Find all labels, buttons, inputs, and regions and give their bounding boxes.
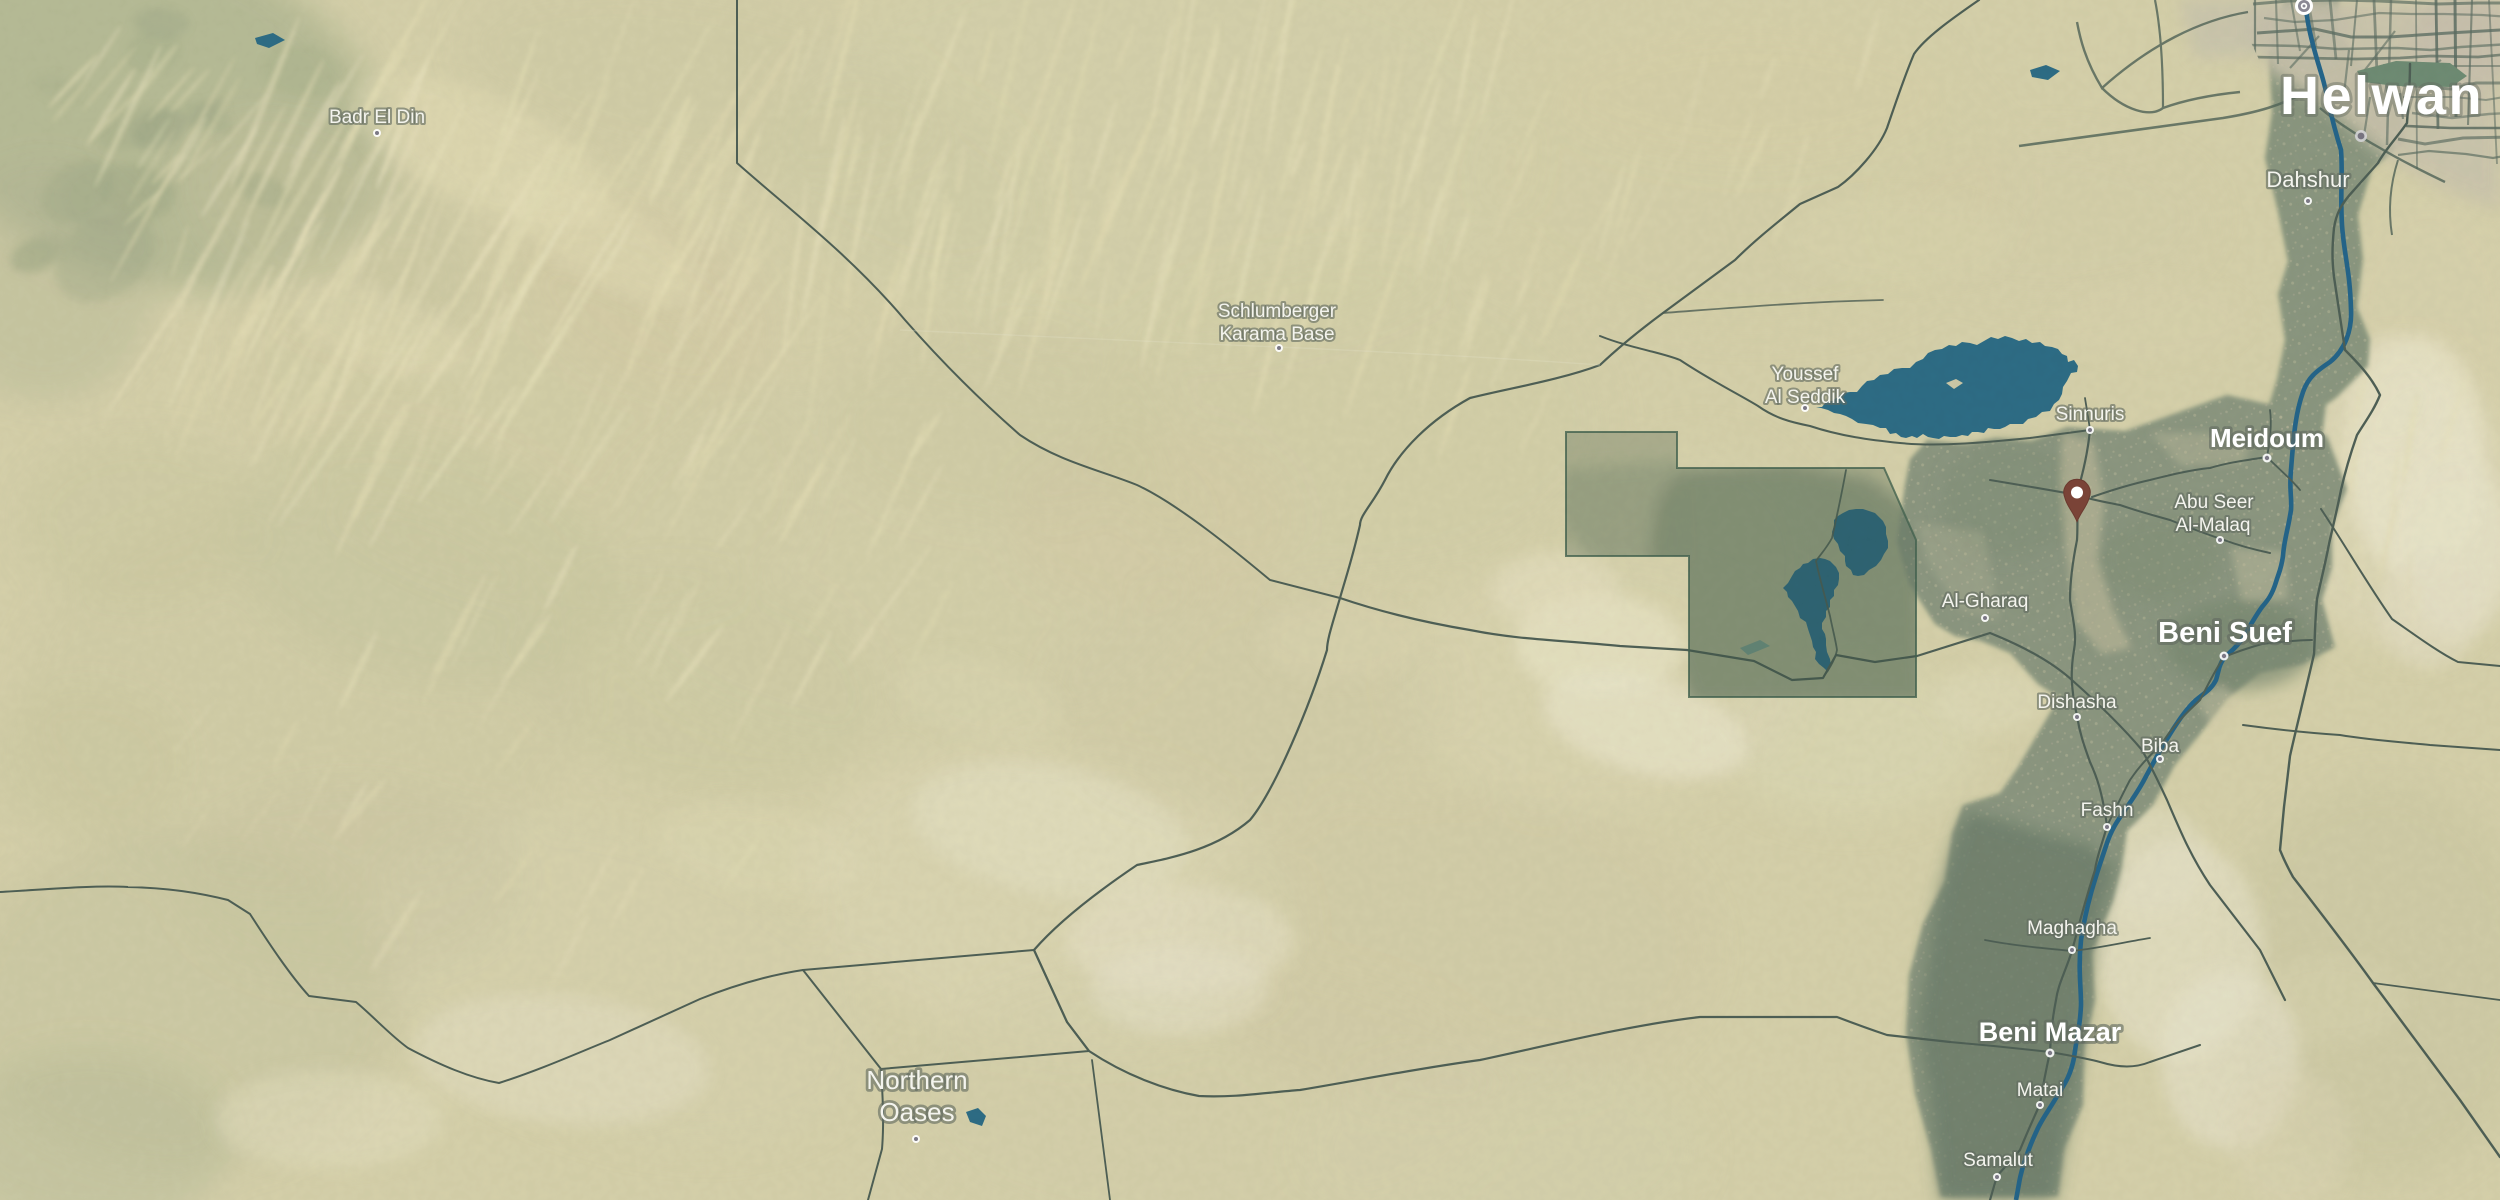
svg-text:Meidoum: Meidoum xyxy=(2210,423,2324,453)
svg-text:Dishasha: Dishasha xyxy=(2037,692,2117,713)
svg-text:Al-Malaq: Al-Malaq xyxy=(2176,515,2251,536)
svg-text:Dahshur: Dahshur xyxy=(2266,167,2349,192)
svg-text:Fashn: Fashn xyxy=(2081,800,2134,821)
svg-text:Al-Gharaq: Al-Gharaq xyxy=(1942,591,2029,612)
svg-text:Beni Suef: Beni Suef xyxy=(2158,617,2292,649)
svg-text:Oases: Oases xyxy=(879,1097,954,1127)
svg-text:Sinnuris: Sinnuris xyxy=(2056,404,2125,425)
svg-text:Biba: Biba xyxy=(2141,736,2179,757)
svg-text:Northern: Northern xyxy=(866,1065,967,1095)
svg-text:Matai: Matai xyxy=(2017,1080,2063,1101)
svg-text:Badr El Din: Badr El Din xyxy=(329,107,425,128)
svg-text:Samalut: Samalut xyxy=(1963,1150,2033,1171)
svg-text:Abu Seer: Abu Seer xyxy=(2174,492,2254,513)
svg-text:Youssef: Youssef xyxy=(1772,364,1840,385)
svg-text:Maghagha: Maghagha xyxy=(2027,918,2117,939)
svg-text:Schlumberger: Schlumberger xyxy=(1218,301,1337,322)
svg-text:Helwan: Helwan xyxy=(2280,66,2484,126)
svg-text:Karama Base: Karama Base xyxy=(1219,324,1334,345)
svg-text:Beni Mazar: Beni Mazar xyxy=(1979,1017,2122,1047)
